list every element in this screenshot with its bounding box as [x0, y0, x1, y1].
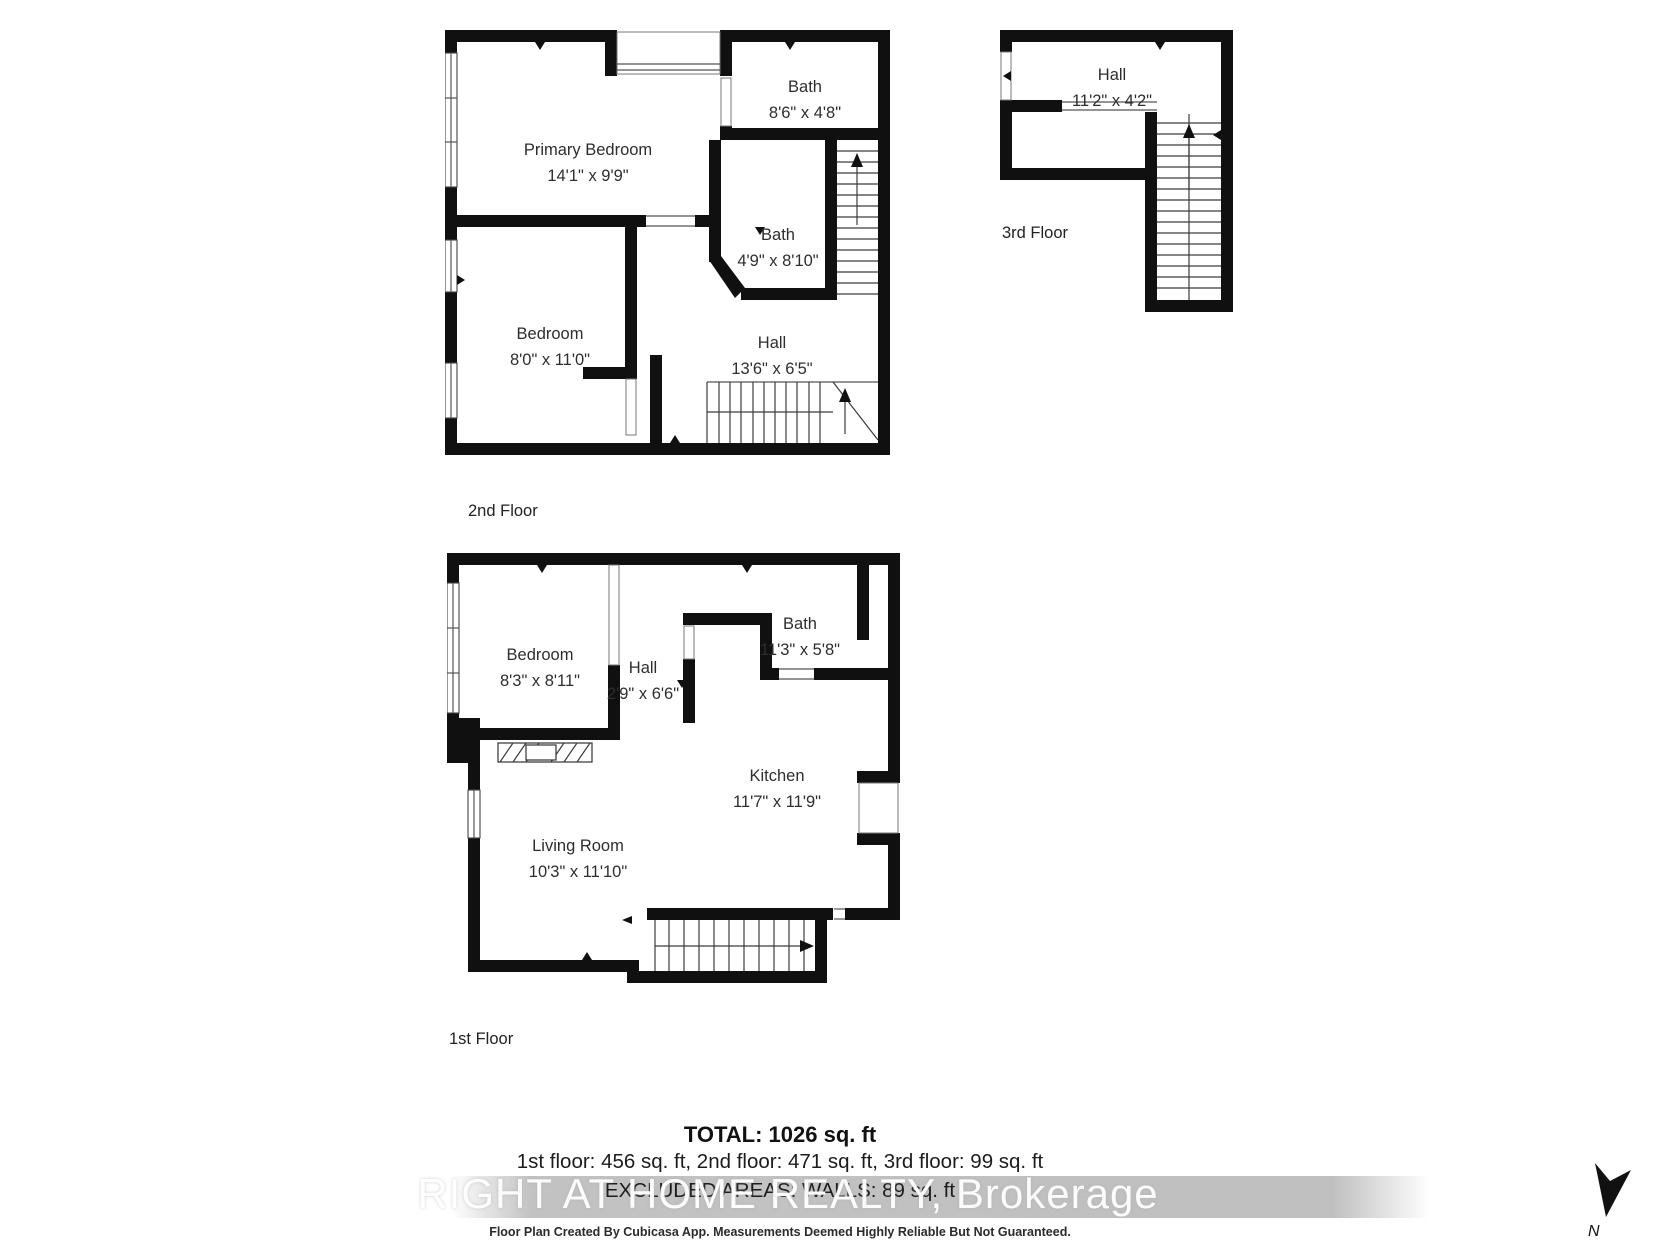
- balcony-nook: [617, 32, 720, 74]
- windows-group: [447, 583, 480, 838]
- room-label-bedroom-1st: Bedroom 8'3" x 8'11": [500, 642, 580, 694]
- disclaimer-text: Floor Plan Created By Cubicasa App. Meas…: [0, 1225, 1560, 1239]
- total-area-line: TOTAL: 1026 sq. ft: [0, 1122, 1560, 1148]
- stairs-down-icon: [1157, 114, 1221, 300]
- room-label-hall-1st: Hall 2'9" x 6'6": [607, 655, 679, 707]
- room-dims: 14'1" x 9'9": [524, 163, 652, 189]
- stairs-entry-icon: [655, 920, 814, 971]
- room-name: Living Room: [529, 833, 627, 859]
- stairs-up-icon: [837, 151, 878, 294]
- room-dims: 13'6" x 6'5": [731, 356, 812, 382]
- room-dims: 11'3" x 5'8": [760, 637, 840, 663]
- caption-3rd-floor: 3rd Floor: [1002, 224, 1068, 243]
- room-name: Hall: [731, 330, 812, 356]
- caption-1st-floor: 1st Floor: [449, 1030, 513, 1049]
- stairs-landing-icon: [707, 382, 878, 443]
- room-name: Hall: [1072, 62, 1152, 88]
- room-dims: 2'9" x 6'6": [607, 681, 679, 707]
- north-arrow-icon: N: [1568, 1140, 1658, 1240]
- room-dims: 8'0" x 11'0": [510, 347, 590, 373]
- room-dims: 8'3" x 8'11": [500, 668, 580, 694]
- room-name: Primary Bedroom: [524, 137, 652, 163]
- north-label: N: [1588, 1223, 1600, 1240]
- floor-plan-sheet: Primary Bedroom 14'1" x 9'9" Bath 8'6" x…: [0, 0, 1680, 1260]
- room-name: Bath: [769, 74, 841, 100]
- room-label-bedroom-2nd: Bedroom 8'0" x 11'0": [510, 321, 590, 373]
- room-label-hall-2nd: Hall 13'6" x 6'5": [731, 330, 812, 382]
- room-label-living-room: Living Room 10'3" x 11'10": [529, 833, 627, 885]
- closet-icon: [498, 743, 592, 762]
- room-dims: 11'2" x 4'2": [1072, 88, 1152, 114]
- room-label-bath-mid: Bath 4'9" x 8'10": [737, 222, 818, 274]
- door-tick-icons: [1155, 42, 1221, 140]
- brokerage-watermark: RIGHT AT HOME REALTY, Brokerage: [417, 1170, 1158, 1218]
- room-label-primary-bedroom: Primary Bedroom 14'1" x 9'9": [524, 137, 652, 189]
- room-name: Bedroom: [510, 321, 590, 347]
- room-dims: 10'3" x 11'10": [529, 859, 627, 885]
- room-label-kitchen: Kitchen 11'7" x 11'9": [733, 763, 821, 815]
- room-label-bath-upper: Bath 8'6" x 4'8": [769, 74, 841, 126]
- room-name: Kitchen: [733, 763, 821, 789]
- room-dims: 11'7" x 11'9": [733, 789, 821, 815]
- room-dims: 4'9" x 8'10": [737, 248, 818, 274]
- room-dims: 8'6" x 4'8": [769, 100, 841, 126]
- room-label-bath-1st: Bath 11'3" x 5'8": [760, 611, 840, 663]
- room-name: Bath: [760, 611, 840, 637]
- room-name: Bedroom: [500, 642, 580, 668]
- room-label-hall-3rd: Hall 11'2" x 4'2": [1072, 62, 1152, 114]
- caption-2nd-floor: 2nd Floor: [468, 502, 538, 521]
- room-name: Bath: [737, 222, 818, 248]
- room-name: Hall: [607, 655, 679, 681]
